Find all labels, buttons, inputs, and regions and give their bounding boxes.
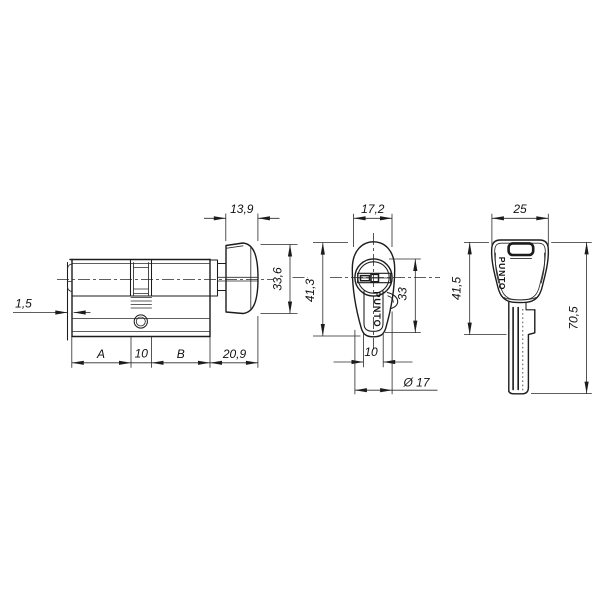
dim-label-overall-height: 41,3 — [303, 278, 317, 302]
cam-ring-grooves — [131, 298, 152, 309]
dim-label-profile-height: 33 — [396, 287, 410, 301]
dim-label-head-length: 41,5 — [450, 276, 464, 300]
dim-label-knob-length: 20,9 — [222, 347, 247, 361]
cylinder-side-view: 13,9 33,6 1,5 A 10 B 20,9 — [13, 202, 298, 368]
dim-label-a: A — [96, 347, 105, 361]
cylinder-front-view: PUNTO 17,2 41,3 33 10 Ø 17 — [293, 202, 441, 394]
key-blade-grooves — [513, 308, 518, 390]
dim-label-top-width: 17,2 — [361, 202, 385, 216]
ext-70-5 — [531, 242, 592, 393]
dim-label-face-protrusion: 1,5 — [15, 297, 32, 311]
knob-ring — [210, 260, 218, 296]
dim-label-b: B — [177, 347, 185, 361]
dim-label-head-width: 25 — [512, 202, 527, 216]
dim-label-knob-depth: 13,9 — [230, 202, 254, 216]
key-blade-right-edge — [528, 310, 534, 388]
key-front-view: PUNTO 25 41,5 70,5 — [450, 202, 592, 394]
dim-label-spine-width: 10 — [364, 345, 378, 359]
technical-drawing: 13,9 33,6 1,5 A 10 B 20,9 PUNTO — [0, 0, 600, 600]
key-head-panel — [509, 243, 534, 255]
dim-label-overall-length: 70,5 — [567, 306, 581, 330]
dim-label-face-diameter: Ø 17 — [402, 375, 430, 389]
dim-label-knob-diameter: 33,6 — [271, 267, 285, 291]
drawing-canvas: 13,9 33,6 1,5 A 10 B 20,9 PUNTO — [0, 0, 600, 600]
brand-text-key: PUNTO — [497, 257, 507, 291]
ext-13-9 — [226, 214, 258, 242]
dim-label-center-10: 10 — [135, 347, 149, 361]
thumbturn-top-line — [226, 246, 243, 249]
key-neck — [526, 303, 535, 310]
thumbturn-outline — [226, 243, 258, 314]
